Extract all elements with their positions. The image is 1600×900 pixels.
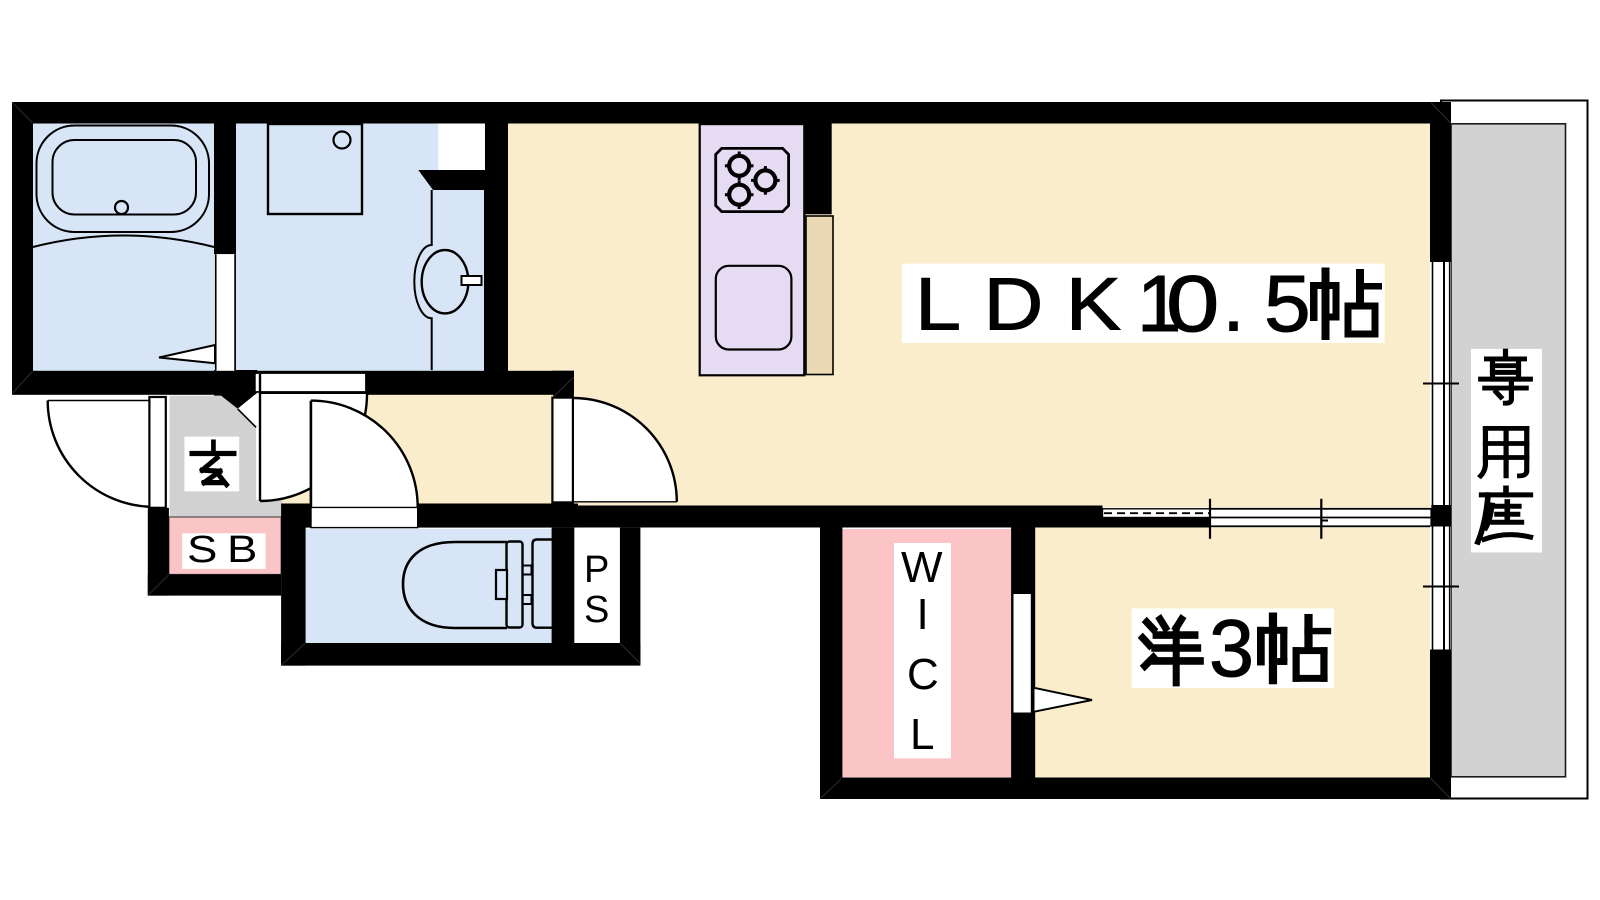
svg-text:LDK: LDK: [915, 263, 1143, 346]
svg-text:SB: SB: [187, 528, 267, 571]
svg-text:W: W: [901, 543, 943, 592]
svg-text:C: C: [907, 650, 939, 699]
svg-text:5: 5: [1264, 260, 1311, 349]
svg-text:P: P: [584, 549, 609, 591]
svg-text:.: .: [1221, 251, 1246, 351]
svg-text:0: 0: [1166, 259, 1219, 349]
svg-text:L: L: [910, 710, 934, 759]
svg-text:3: 3: [1209, 604, 1254, 694]
svg-text:S: S: [584, 589, 609, 631]
svg-text:I: I: [917, 590, 929, 639]
